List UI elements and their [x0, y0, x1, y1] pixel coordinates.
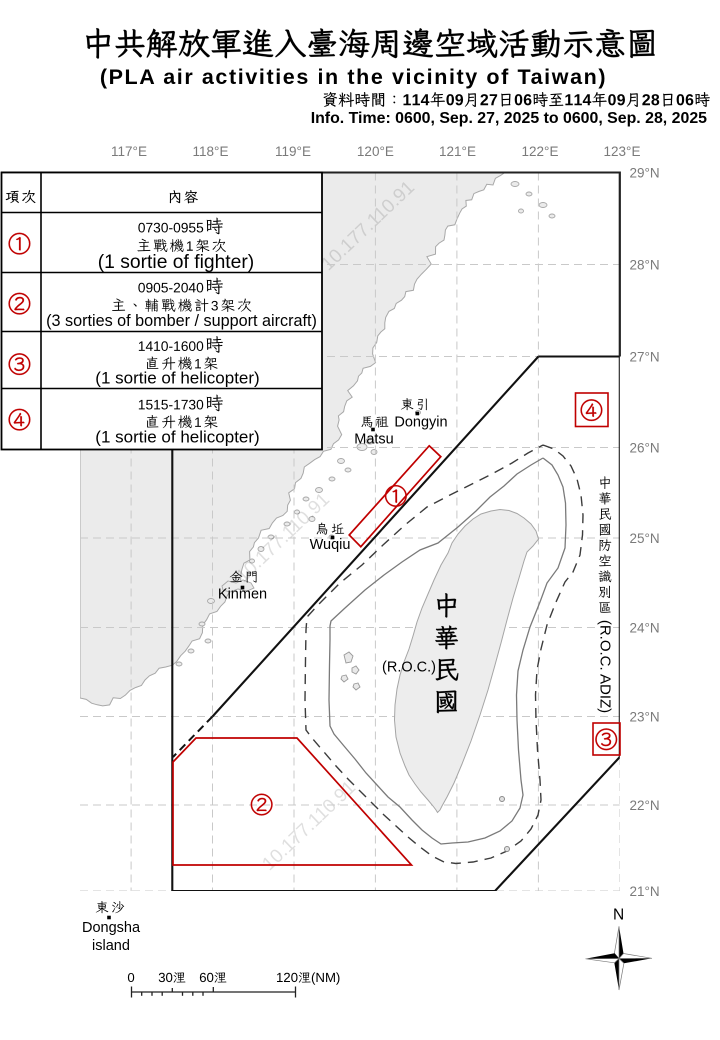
svg-text:(1 sortie of fighter): (1 sortie of fighter)	[98, 252, 254, 273]
svg-text:24°N: 24°N	[630, 620, 660, 635]
svg-text:(1 sortie of helicopter): (1 sortie of helicopter)	[95, 428, 259, 447]
svg-text:(R.O.C.): (R.O.C.)	[382, 660, 436, 676]
svg-text:(3 sorties of bomber / support: (3 sorties of bomber / support aircraft)	[46, 312, 317, 330]
svg-text:(PLA air activities in the vic: (PLA air activities in the vicinity of T…	[100, 65, 607, 89]
svg-text:117°E: 117°E	[111, 144, 147, 159]
svg-text:N: N	[613, 907, 624, 924]
svg-text:26°N: 26°N	[630, 440, 660, 455]
svg-text:123°E: 123°E	[604, 144, 641, 159]
svg-text:25°N: 25°N	[630, 531, 660, 546]
svg-text:120°E: 120°E	[357, 144, 394, 159]
svg-text:23°N: 23°N	[630, 709, 660, 724]
svg-text:Kinmen: Kinmen	[218, 587, 267, 603]
svg-text:27°N: 27°N	[630, 349, 660, 364]
svg-text:Matsu: Matsu	[354, 432, 394, 448]
svg-text:122°E: 122°E	[522, 144, 559, 159]
svg-text:(1 sortie of helicopter): (1 sortie of helicopter)	[95, 369, 259, 388]
svg-text:Info. Time: 0600, Sep. 27, 202: Info. Time: 0600, Sep. 27, 2025 to 0600,…	[311, 110, 707, 127]
svg-text:121°E: 121°E	[439, 144, 476, 159]
svg-text:118°E: 118°E	[193, 144, 229, 159]
svg-text:119°E: 119°E	[275, 144, 311, 159]
svg-text:0: 0	[127, 970, 134, 985]
svg-text:Dongsha: Dongsha	[82, 920, 141, 936]
svg-text:29°N: 29°N	[630, 165, 660, 180]
svg-text:21°N: 21°N	[630, 884, 660, 899]
svg-text:(R.O.C. ADIZ): (R.O.C. ADIZ)	[597, 620, 614, 713]
svg-text:Dongyin: Dongyin	[394, 415, 447, 431]
svg-text:22°N: 22°N	[630, 798, 660, 813]
svg-text:28°N: 28°N	[630, 257, 660, 272]
svg-text:Wuqiu: Wuqiu	[310, 537, 351, 553]
svg-text:island: island	[92, 938, 130, 954]
